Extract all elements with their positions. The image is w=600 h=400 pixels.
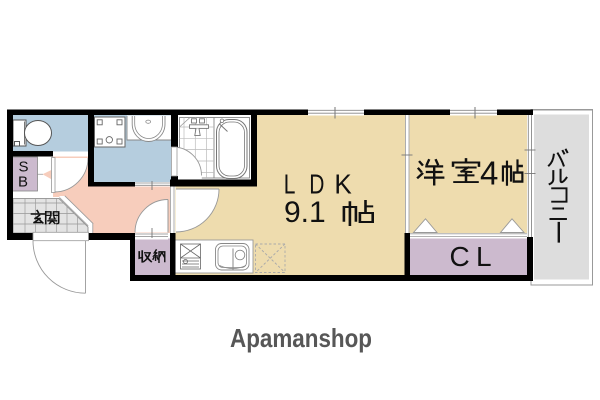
svg-text:K: K <box>334 169 351 200</box>
svg-text:B: B <box>18 173 28 190</box>
svg-text:Apamanshop: Apamanshop <box>230 323 372 353</box>
svg-text:4: 4 <box>480 154 498 191</box>
svg-text:9.1: 9.1 <box>284 196 326 229</box>
